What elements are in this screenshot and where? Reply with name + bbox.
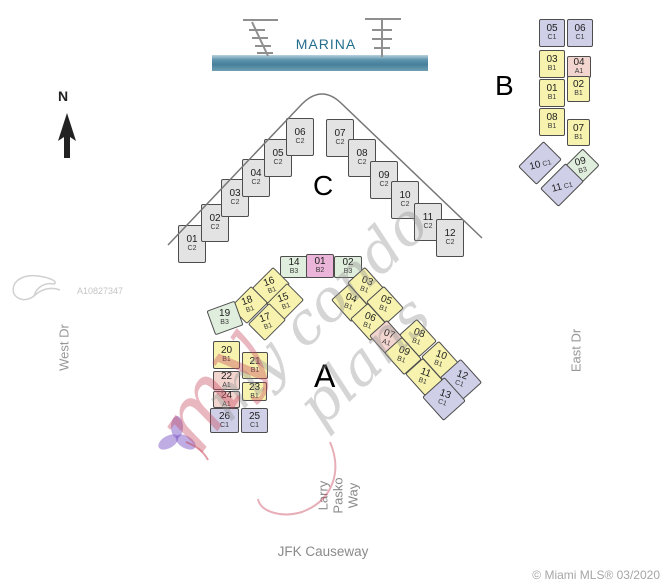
unit-label: 12C1 (453, 370, 470, 391)
unit-label: 03B1 (546, 55, 557, 73)
unit-label: 11C1 (548, 173, 575, 196)
unit-label: 10C1 (526, 151, 554, 175)
camera-watermark-icon (13, 276, 60, 300)
unit-label: 02B3 (342, 258, 353, 276)
mls-attribution: © Miami MLS® 03/2020 (532, 568, 660, 582)
unit-label: 05B1 (377, 295, 394, 316)
unit-label: 17B1 (259, 312, 276, 333)
building-label-B: B (495, 72, 514, 100)
unit-A-21: 21B1 (242, 352, 268, 379)
unit-label: 06C2 (294, 128, 305, 146)
unit-A-26: 26C1 (210, 408, 239, 433)
street-line: Way (346, 464, 361, 528)
unit-label: 09B1 (395, 346, 412, 367)
street-line: Pasko (331, 464, 346, 528)
unit-B-08: 08B1 (539, 108, 565, 136)
unit-label: 14B3 (288, 258, 299, 276)
unit-B-02: 02B1 (567, 76, 590, 102)
unit-A-24: 24A1 (213, 391, 240, 408)
unit-label: 04A1 (573, 58, 584, 76)
photo-id-watermark: A10827347 (77, 286, 123, 296)
unit-A-14: 14B3 (280, 256, 308, 278)
unit-label: 11C2 (423, 213, 433, 231)
unit-label: 08B1 (410, 328, 427, 349)
unit-label: 01B1 (546, 84, 557, 102)
unit-C-06: 06C2 (286, 118, 314, 156)
unit-label: 25C1 (249, 412, 260, 430)
unit-A-22: 22A1 (213, 371, 240, 390)
unit-label: 02C2 (209, 214, 220, 232)
unit-label: 18B1 (241, 295, 258, 316)
unit-label: 05C2 (272, 149, 283, 167)
dock-icon-right (365, 19, 401, 57)
building-label-C: C (313, 172, 333, 200)
unit-label: 19B3 (219, 309, 230, 327)
unit-label: 10B1 (432, 350, 449, 371)
unit-B-03: 03B1 (539, 50, 565, 78)
unit-label: 09B3 (574, 156, 589, 176)
flower-watermark-icon (156, 416, 208, 460)
unit-label: 20B1 (221, 346, 232, 364)
unit-A-01: 01B2 (306, 254, 334, 278)
unit-label: 07C2 (334, 129, 345, 147)
unit-label: 07B1 (573, 124, 584, 142)
unit-B-01: 01B1 (539, 79, 565, 107)
unit-label: 15B1 (277, 292, 294, 313)
unit-label: 05C1 (546, 24, 557, 42)
street-label-larry-pasko-way: Larry Pasko Way (316, 464, 361, 528)
north-arrow-icon (58, 113, 76, 158)
unit-B-05: 05C1 (539, 19, 565, 47)
unit-B-06: 06C1 (567, 19, 593, 47)
unit-label: 04B1 (342, 293, 359, 314)
street-label-west: West Dr (57, 318, 72, 378)
unit-label: 08B1 (546, 113, 557, 131)
street-line: Larry (316, 464, 331, 528)
building-label-A: A (314, 360, 335, 392)
unit-A-23: 23B1 (242, 382, 267, 401)
unit-A-20: 20B1 (213, 341, 240, 369)
unit-label: 09C2 (378, 171, 389, 189)
unit-label: 03C2 (229, 189, 240, 207)
unit-label: 22A1 (221, 372, 232, 390)
unit-label: 26C1 (219, 412, 230, 430)
unit-label: 12C2 (444, 229, 455, 247)
unit-label: 06C1 (574, 24, 585, 42)
site-plan: MARINA N West Dr East Dr Larry Pasko Way… (0, 0, 666, 588)
unit-label: 02B1 (573, 80, 584, 98)
unit-label: 24A1 (221, 391, 232, 409)
marina-water (212, 55, 428, 71)
unit-label: 01B2 (314, 257, 325, 275)
unit-label: 13C1 (436, 389, 453, 410)
unit-label: 21B1 (249, 357, 260, 375)
unit-label: 08C2 (356, 149, 367, 167)
street-label-east: East Dr (569, 321, 584, 381)
unit-label: 03B1 (358, 276, 375, 297)
unit-label: 11B1 (416, 367, 432, 387)
unit-label: 23B1 (249, 383, 260, 401)
unit-label: 10C2 (399, 191, 410, 209)
dock-icon-left (243, 20, 278, 56)
unit-label: 04C2 (250, 169, 261, 187)
north-label: N (58, 88, 68, 104)
unit-label: 01C2 (186, 235, 197, 253)
unit-C-12: 12C2 (436, 219, 464, 257)
unit-B-07: 07B1 (567, 119, 590, 146)
unit-B-04: 04A1 (567, 56, 591, 78)
marina-label: MARINA (291, 36, 361, 52)
street-label-jfk-causeway: JFK Causeway (268, 544, 378, 559)
unit-A-25: 25C1 (241, 408, 268, 433)
